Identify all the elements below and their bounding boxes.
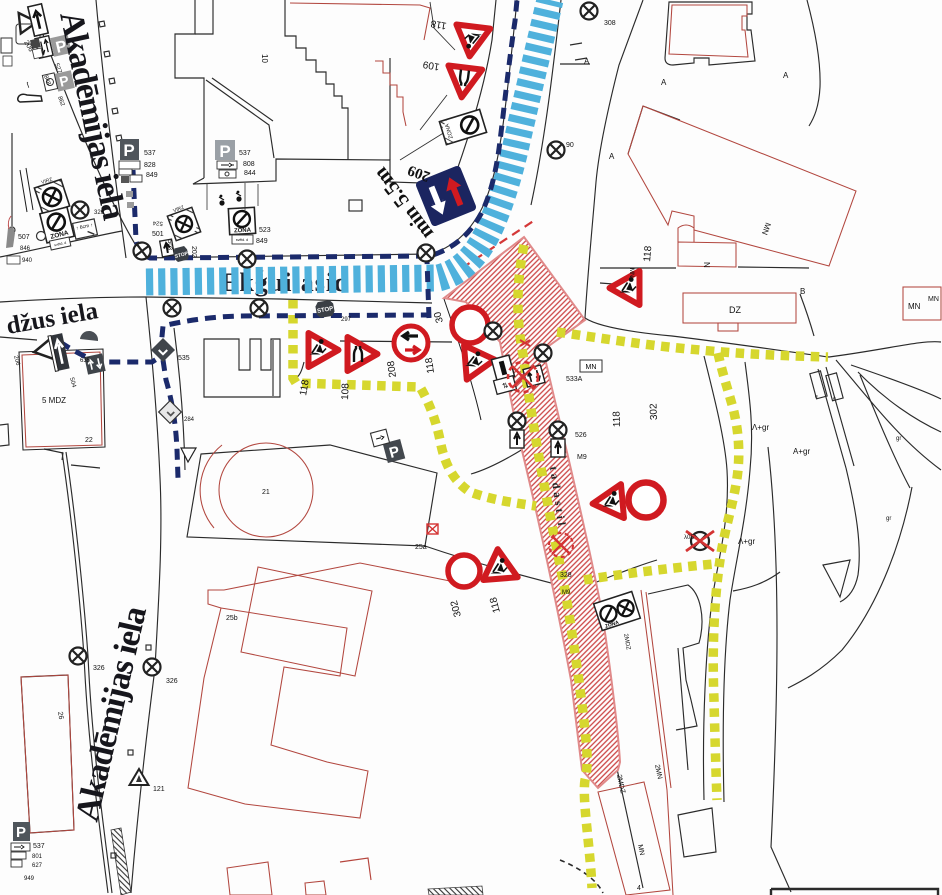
svg-text:308: 308 xyxy=(604,20,616,27)
svg-text:A: A xyxy=(609,152,615,161)
svg-text:537: 537 xyxy=(239,150,251,157)
svg-text:M9: M9 xyxy=(562,590,571,596)
svg-text:4: 4 xyxy=(637,885,641,892)
svg-text:949: 949 xyxy=(24,876,35,882)
svg-text:MN: MN xyxy=(928,296,939,303)
svg-text:846: 846 xyxy=(20,246,31,252)
svg-text:808: 808 xyxy=(243,161,255,168)
svg-text:118: 118 xyxy=(424,356,437,374)
svg-text:801: 801 xyxy=(32,854,43,860)
svg-text:118: 118 xyxy=(611,411,623,428)
svg-text:533A: 533A xyxy=(566,376,583,383)
svg-text:849: 849 xyxy=(146,172,158,179)
svg-text:Λ+gr: Λ+gr xyxy=(752,423,769,432)
svg-text:ZONA: ZONA xyxy=(234,228,252,235)
svg-text:A: A xyxy=(584,57,590,66)
svg-text:5 MDZ: 5 MDZ xyxy=(42,396,66,405)
svg-text:501: 501 xyxy=(152,231,164,238)
svg-text:MN: MN xyxy=(586,364,597,371)
svg-text:302: 302 xyxy=(648,403,660,420)
svg-text:535: 535 xyxy=(178,355,190,362)
svg-text:P: P xyxy=(219,142,230,161)
svg-text:537: 537 xyxy=(33,843,45,850)
svg-text:DZ: DZ xyxy=(729,305,741,315)
svg-text:A: A xyxy=(783,71,789,80)
svg-text:MN: MN xyxy=(628,268,634,277)
svg-text:523: 523 xyxy=(259,227,271,234)
svg-text:326: 326 xyxy=(166,678,178,685)
svg-text:328: 328 xyxy=(560,572,572,579)
svg-text:326: 326 xyxy=(94,210,105,216)
svg-text:P: P xyxy=(16,824,26,841)
svg-text:22: 22 xyxy=(85,437,93,444)
svg-text:svētd. d: svētd. d xyxy=(236,238,248,242)
svg-text:A+gr: A+gr xyxy=(793,447,810,456)
svg-text:A: A xyxy=(661,78,667,87)
svg-text:121: 121 xyxy=(153,786,165,793)
svg-text:326: 326 xyxy=(93,665,105,672)
svg-text:gr: gr xyxy=(896,436,901,442)
svg-text:118: 118 xyxy=(642,245,654,262)
svg-text:940: 940 xyxy=(22,258,33,264)
svg-text:26: 26 xyxy=(56,711,64,720)
svg-text:25a: 25a xyxy=(415,544,427,551)
svg-text:90: 90 xyxy=(566,142,574,149)
svg-text:537: 537 xyxy=(144,150,156,157)
svg-text:844: 844 xyxy=(244,170,256,177)
svg-text:MN: MN xyxy=(908,302,921,311)
svg-text:297: 297 xyxy=(341,317,352,323)
svg-text:507: 507 xyxy=(18,234,30,241)
svg-text:828: 828 xyxy=(144,162,156,169)
svg-text:P: P xyxy=(123,141,134,160)
svg-text:635: 635 xyxy=(80,358,91,364)
svg-text:202: 202 xyxy=(190,246,197,258)
svg-text:526: 526 xyxy=(575,432,587,439)
svg-text:e: e xyxy=(833,396,836,402)
svg-text:M9: M9 xyxy=(577,454,587,461)
svg-text:Λ+gr: Λ+gr xyxy=(738,537,755,546)
svg-text:849: 849 xyxy=(256,238,268,245)
svg-text:284: 284 xyxy=(184,417,195,423)
svg-text:e: e xyxy=(815,394,818,400)
svg-text:524: 524 xyxy=(152,219,163,226)
svg-text:N: N xyxy=(702,262,711,268)
svg-text:503: 503 xyxy=(166,240,172,251)
svg-text:B: B xyxy=(800,287,805,296)
svg-text:λ0Б: λ0Б xyxy=(684,535,694,541)
svg-text:10: 10 xyxy=(260,54,269,63)
svg-text:21: 21 xyxy=(262,489,270,496)
svg-text:108: 108 xyxy=(340,383,352,400)
svg-text:25b: 25b xyxy=(226,615,238,622)
svg-text:627: 627 xyxy=(32,863,43,869)
svg-text:gr: gr xyxy=(886,516,891,522)
